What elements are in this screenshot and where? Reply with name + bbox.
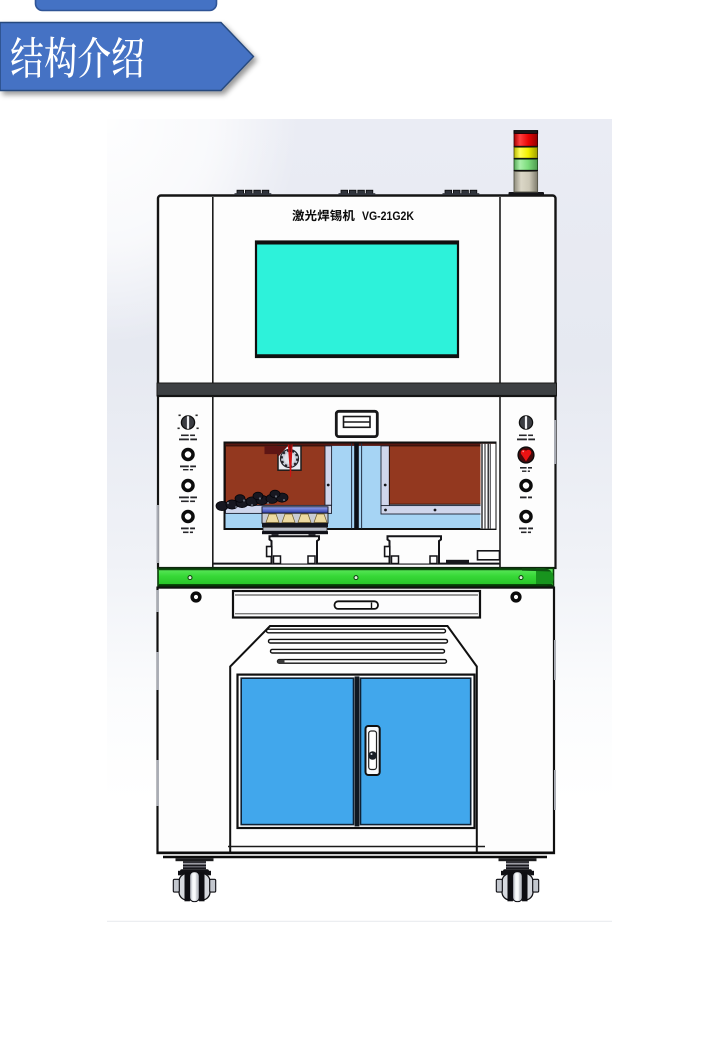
svg-text:VG-21G2K: VG-21G2K [362, 209, 414, 223]
